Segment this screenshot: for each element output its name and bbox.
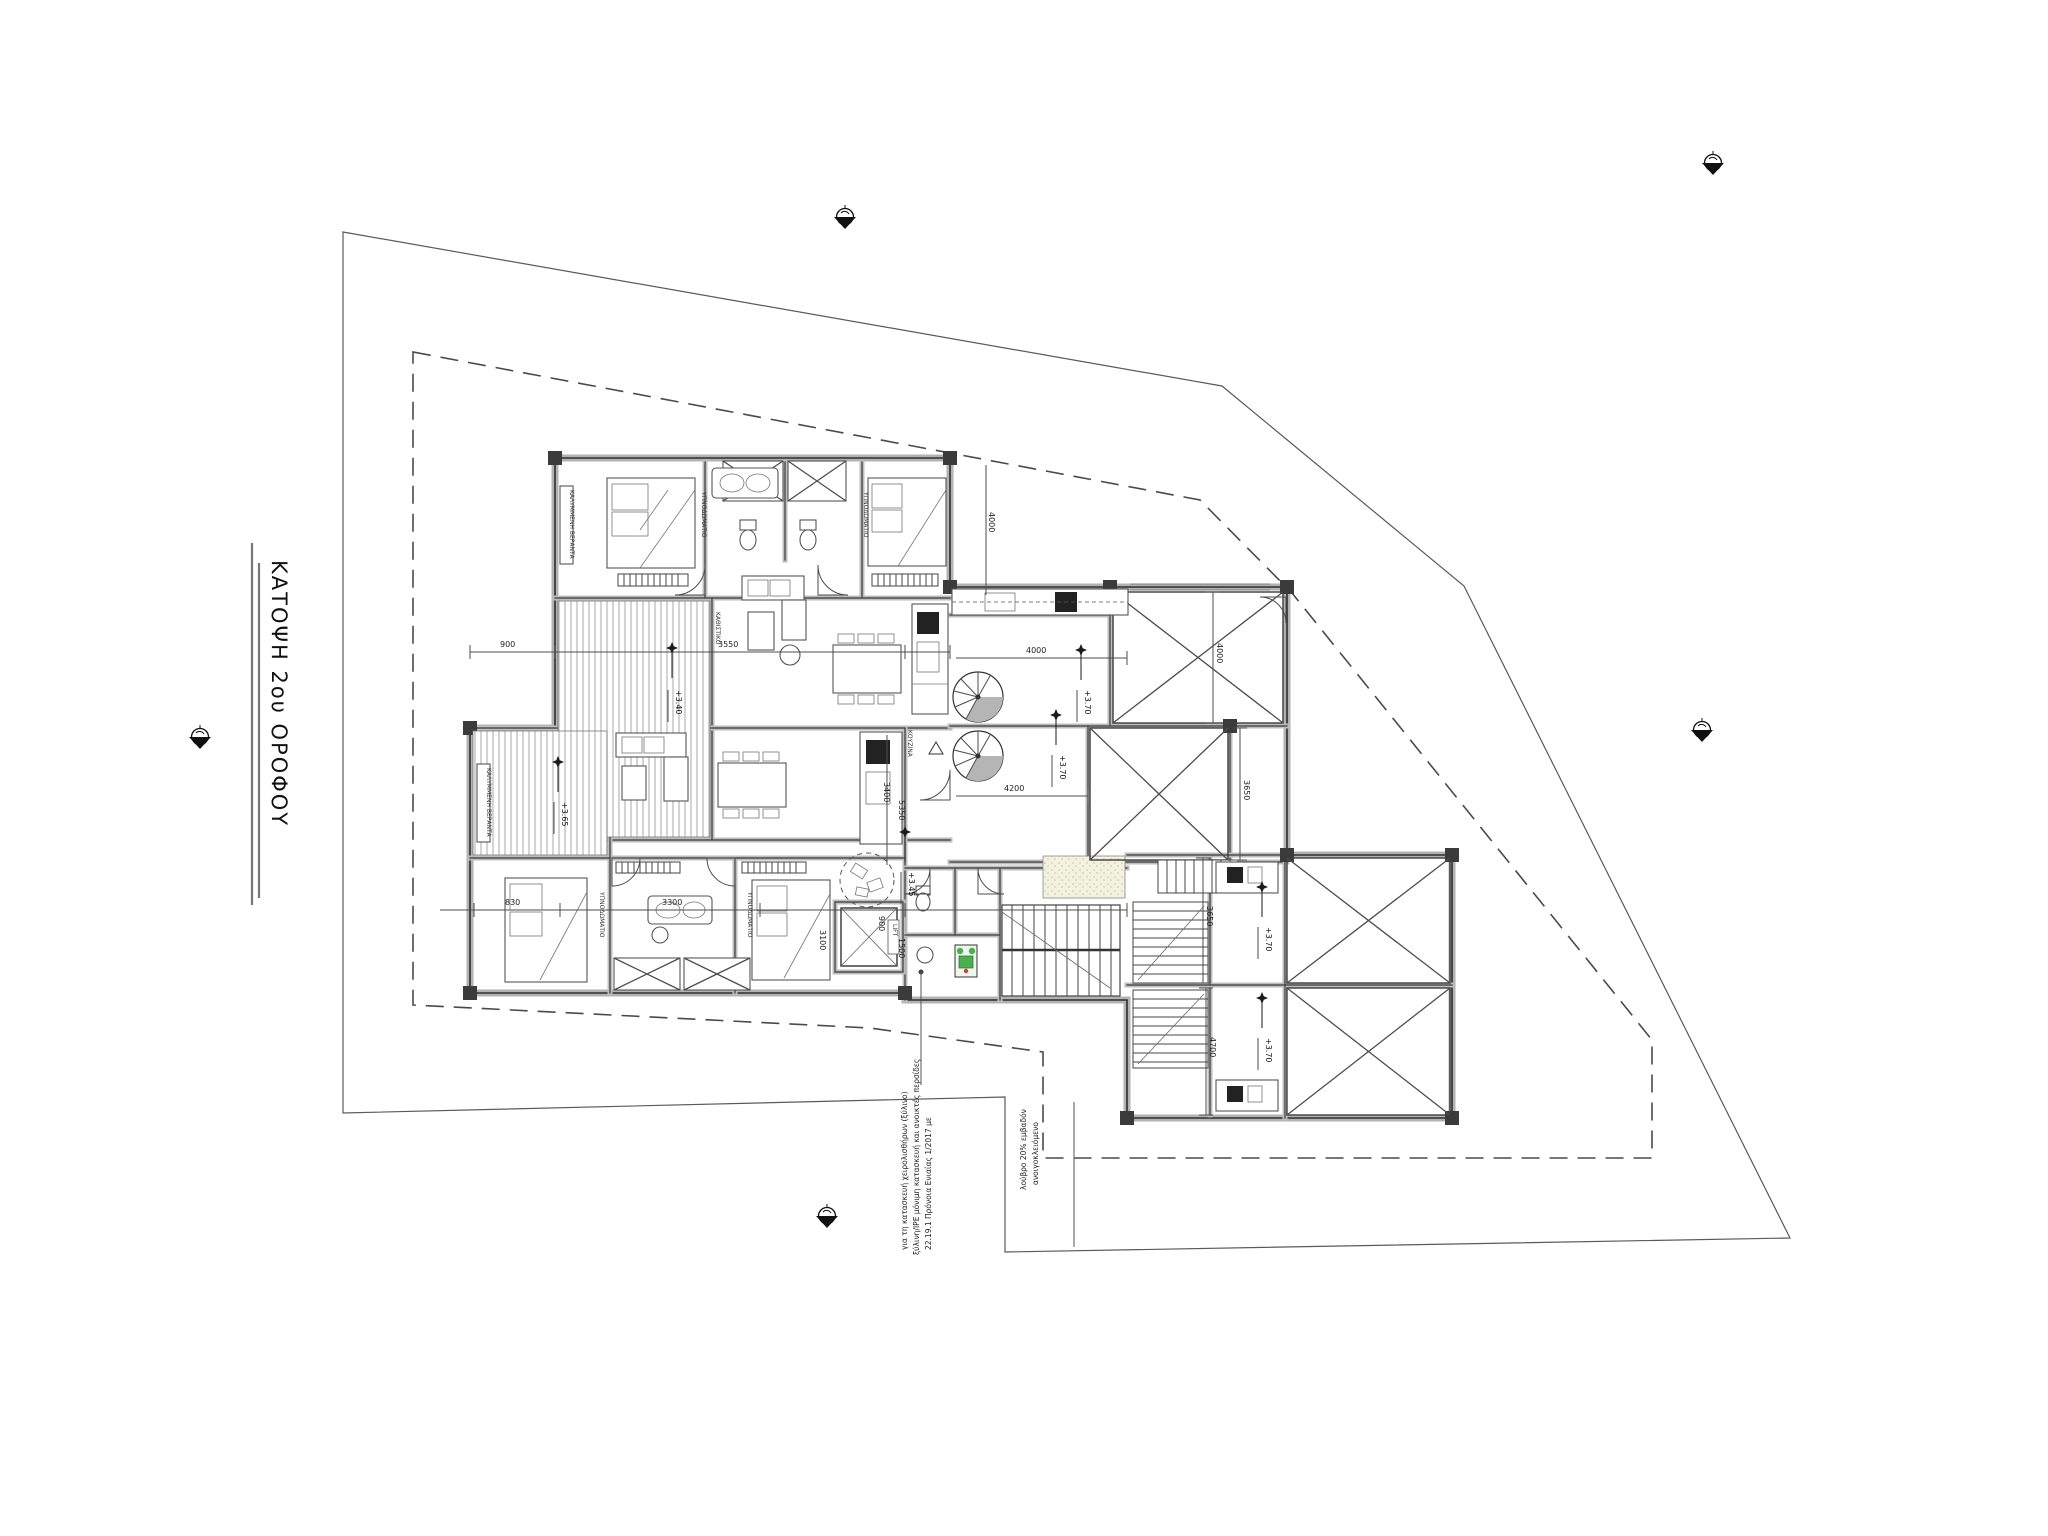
kitchenette: [1216, 862, 1278, 893]
radiator: [742, 862, 806, 873]
note-text-line: για τη κατασκευή χειρολισθήρων (ξύλινο): [900, 1091, 909, 1250]
washbasin: [652, 927, 668, 943]
lift-label: LIFT: [891, 924, 898, 936]
dimension-label: 4000: [1026, 646, 1046, 655]
survey-marker-icon: [1702, 151, 1724, 175]
dimension-label: 3550: [718, 640, 738, 649]
kitchen-counter: [912, 604, 948, 714]
toilet: [740, 520, 756, 550]
closet-x: [614, 958, 680, 990]
toilet: [800, 520, 816, 550]
note-text-line: 22.19.1 Πρόνοια Ενιαίας 1/2017 με: [924, 1117, 933, 1250]
level-label: +3.40: [674, 690, 683, 715]
dimension-label: 830: [505, 898, 520, 907]
entry-arrow-symbol: [929, 742, 943, 754]
bed: [505, 878, 587, 982]
main-staircase: [1002, 905, 1120, 996]
room-label-veranda-upper: ΚΑΛΥΜΜΕΝΗ ΒΕΡΑΝΤΑ: [568, 490, 575, 560]
dimension-label: 3650: [1242, 780, 1251, 800]
room-label-veranda-lower: ΚΑΛΥΜΜΕΝΗ ΒΕΡΑΝΤΑ: [485, 768, 492, 838]
floor-plan-page: ΚΑΤΟΨΗ 2ου ΟΡΟΦΟΥ: [0, 0, 2048, 1536]
dimension-label: 3650: [1205, 906, 1214, 926]
note-text-line: ανοιγοκλειόμενο: [1031, 1122, 1040, 1185]
terrace-x: [1113, 592, 1283, 723]
radiator: [616, 862, 680, 873]
survey-marker-icon: [1691, 718, 1713, 742]
lift-shaft: LIFT: [841, 908, 899, 966]
room-label-bedroom: ΥΠΝΟΔΩΜΑΤΙΟ: [746, 891, 753, 938]
closet-x: [788, 461, 846, 501]
level-label: +3.70: [1058, 755, 1067, 780]
room-label-bedroom: ΥΠΝΟΔΩΜΑΤΙΟ: [700, 491, 707, 538]
radiator: [618, 574, 688, 586]
level-label: +3.70: [1264, 1038, 1273, 1063]
kitchen-counter: [860, 732, 902, 844]
dimension-label: 3100: [818, 930, 827, 950]
closet-x: [684, 958, 750, 990]
level-label: +3.70: [1083, 690, 1092, 715]
dimension-label: 4000: [987, 512, 996, 532]
stroller-symbol: [955, 945, 977, 977]
roof-feature-dashed: [840, 853, 894, 907]
bathtub: [712, 468, 778, 498]
note-text-line: ξύλινη/ΙΡΕ μόνιμη κατασκευή και ανοικτές…: [912, 1059, 921, 1255]
radiator: [872, 574, 938, 586]
kitchenette: [1216, 1080, 1278, 1111]
terrace-x: [1287, 988, 1450, 1115]
dimension-label: 4700: [1208, 1037, 1217, 1057]
level-label: +3.65: [560, 802, 569, 827]
covered-veranda-lower: [473, 731, 607, 855]
open-terrace-dotted: [1043, 856, 1125, 898]
survey-marker-icon: [816, 1204, 838, 1228]
terrace-x: [1287, 858, 1450, 983]
floor-plan-drawing: ΚΑΤΟΨΗ 2ου ΟΡΟΦΟΥ: [0, 0, 2048, 1536]
level-label: +3.45: [907, 872, 916, 897]
room-label-kitchen: ΚΟΥΖΙΝΑ: [906, 730, 913, 758]
bed: [868, 478, 946, 566]
annotation-notes: 22.19.1 Πρόνοια Ενιαίας 1/2017 με ξύλινη…: [900, 970, 1074, 1256]
note-text-line: λούβρο 20% εμβαδόν: [1019, 1109, 1028, 1190]
survey-marker-icon: [834, 205, 856, 229]
level-label: +3.70: [1264, 927, 1273, 952]
room-label-bedroom: ΥΠΝΟΔΩΜΑΤΙΟ: [598, 891, 605, 938]
dimension-label: 3400: [882, 782, 891, 802]
dimension-label: 5350: [897, 800, 906, 820]
dining-table: [718, 752, 786, 818]
dimension-label: 900: [500, 640, 515, 649]
dimension-label: 1500: [897, 938, 906, 958]
room-label-bedroom: ΥΠΝΟΔΩΜΑΤΙΟ: [862, 491, 869, 538]
terrace-x: [1090, 728, 1228, 860]
kitchen-counter: [952, 589, 1128, 615]
dimension-label: 900: [877, 916, 886, 931]
spiral-stair-icon: [953, 672, 1003, 722]
dimension-label: 4000: [1215, 643, 1224, 663]
survey-marker-icon: [189, 725, 211, 749]
page-title: ΚΑΤΟΨΗ 2ου ΟΡΟΦΟΥ: [267, 560, 291, 827]
dimension-label: 4200: [1004, 784, 1024, 793]
dining-table: [833, 634, 901, 704]
washbasin: [917, 947, 933, 963]
dimension-label: 3300: [662, 898, 682, 907]
spiral-stair-icon: [953, 731, 1003, 781]
bed: [607, 478, 695, 568]
drawing-title-block: ΚΑΤΟΨΗ 2ου ΟΡΟΦΟΥ: [252, 543, 291, 905]
